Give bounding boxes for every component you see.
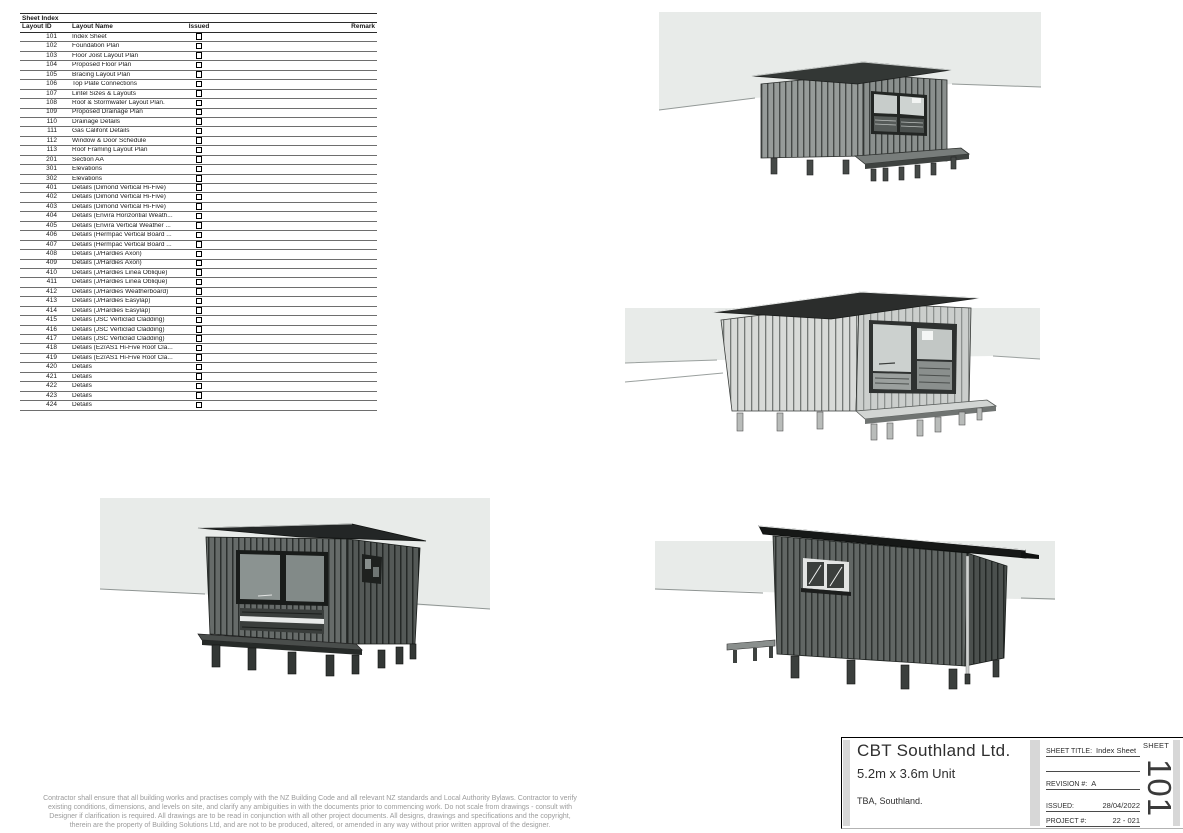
layout-id-cell: 412: [20, 289, 72, 296]
layout-name-cell: Details (E2/AS1 Hi-Five Roof Cla...: [72, 345, 187, 352]
issued-checkbox[interactable]: [196, 260, 203, 267]
sheet-index-title: Sheet Index: [20, 13, 377, 23]
issued-cell: [187, 81, 211, 88]
issued-cell: [187, 147, 211, 154]
layout-id-cell: 408: [20, 251, 72, 258]
cabin-side-wall: [348, 539, 420, 644]
sheet-index-rows: 101Index Sheet102Foundation Plan103Floor…: [20, 33, 377, 411]
disclaimer-line: Contractor shall ensure that all buildin…: [8, 794, 612, 803]
layout-name-cell: Details (J/Hardies Easylap): [72, 298, 187, 305]
issued-cell: [187, 52, 211, 59]
layout-id-cell: 401: [20, 185, 72, 192]
issued-checkbox[interactable]: [196, 137, 203, 144]
sheet-index-row: 401Details (Dimond Vertical Hi-Five): [20, 184, 377, 193]
sheet-index-row: 403Details (Dimond Vertical Hi-Five): [20, 203, 377, 212]
sheet-index-row: 105Bracing Layout Plan: [20, 71, 377, 80]
issued-cell: [187, 166, 211, 173]
sheet-index-row: 201Section AA: [20, 156, 377, 165]
issued-checkbox[interactable]: [196, 81, 203, 88]
issued-checkbox[interactable]: [196, 232, 203, 239]
issued-checkbox[interactable]: [196, 269, 203, 276]
layout-id-cell: 201: [20, 157, 72, 164]
sheet-index-row: 410Details (J/Hardies Linea Oblique): [20, 269, 377, 278]
issued-checkbox[interactable]: [196, 241, 203, 248]
layout-id-cell: 415: [20, 317, 72, 324]
issued-cell: [187, 62, 211, 69]
revision-field: REVISION #: A: [1046, 775, 1140, 790]
sheet-index-row: 414Details (J/Hardies Easylap): [20, 307, 377, 316]
title-block-divider-strip: [1030, 740, 1040, 826]
layout-name-cell: Details: [72, 393, 187, 400]
render-unit-view-back-left-light: [625, 272, 1040, 445]
issued-checkbox[interactable]: [196, 373, 203, 380]
layout-name-cell: Floor Joist Layout Plan: [72, 53, 187, 60]
company-block: CBT Southland Ltd. 5.2m x 3.6m Unit TBA,…: [857, 741, 1027, 806]
sheet-title-value: Index Sheet: [1096, 746, 1136, 755]
render-unit-view-front-left-dark: [100, 492, 490, 692]
layout-name-cell: Details (Dimond Vertical Hi-Five): [72, 204, 187, 211]
sheet-index-row: 424Details: [20, 401, 377, 410]
blank-field: [1046, 760, 1140, 772]
issued-checkbox[interactable]: [196, 251, 203, 258]
title-block-left-strip: [843, 740, 850, 826]
column-header-layout-id: Layout ID: [20, 24, 72, 31]
issued-cell: [187, 109, 211, 116]
issued-checkbox[interactable]: [196, 298, 203, 305]
sheet-index-row: 111Gas Califont Details: [20, 127, 377, 136]
layout-id-cell: 422: [20, 383, 72, 390]
layout-name-cell: Details: [72, 364, 187, 371]
layout-id-cell: 420: [20, 364, 72, 371]
layout-id-cell: 112: [20, 138, 72, 145]
sheet-index-row: 421Details: [20, 373, 377, 382]
sheet-index-row: 113Roof Framing Layout Plan: [20, 146, 377, 155]
layout-id-cell: 406: [20, 232, 72, 239]
sheet-index-row: 418Details (E2/AS1 Hi-Five Roof Cla...: [20, 344, 377, 353]
layout-name-cell: Details: [72, 383, 187, 390]
sheet-title-label: SHEET TITLE:: [1046, 748, 1092, 755]
layout-id-cell: 407: [20, 242, 72, 249]
cabin-side-wall: [721, 303, 859, 411]
issued-cell: [187, 383, 211, 390]
issued-cell: [187, 222, 211, 229]
issued-checkbox[interactable]: [196, 90, 203, 97]
issued-checkbox[interactable]: [196, 175, 203, 182]
issued-cell: [187, 137, 211, 144]
issued-checkbox[interactable]: [196, 345, 203, 352]
layout-id-cell: 113: [20, 147, 72, 154]
layout-name-cell: Details (JSC Verticlad Cladding): [72, 336, 187, 343]
sheet-index-row: 103Floor Joist Layout Plan: [20, 52, 377, 61]
layout-id-cell: 417: [20, 336, 72, 343]
layout-id-cell: 421: [20, 374, 72, 381]
small-window-glass: [373, 567, 379, 577]
sheet-index-row: 419Details (E2/AS1 Hi-Five Roof Cla...: [20, 354, 377, 363]
sheet-index-row: 420Details: [20, 363, 377, 372]
issued-cell: [187, 33, 211, 40]
issued-cell: [187, 279, 211, 286]
layout-id-cell: 110: [20, 119, 72, 126]
issued-cell: [187, 175, 211, 182]
cabin-end-wall: [965, 553, 1007, 666]
issued-checkbox[interactable]: [196, 279, 203, 286]
issued-checkbox[interactable]: [196, 326, 203, 333]
layout-id-cell: 403: [20, 204, 72, 211]
window-glass: [874, 94, 897, 114]
layout-name-cell: Details (J/Hardies Axon): [72, 251, 187, 258]
sheet-index-row: 416Details (JSC Verticlad Cladding): [20, 326, 377, 335]
issued-checkbox[interactable]: [196, 166, 203, 173]
issued-checkbox[interactable]: [196, 203, 203, 210]
issued-cell: [187, 100, 211, 107]
layout-id-cell: 101: [20, 34, 72, 41]
layout-name-cell: Top Plate Connections: [72, 81, 187, 88]
sheet-index-row: 407Details (Hermpac Vertical Board ...: [20, 241, 377, 250]
issued-cell: [187, 251, 211, 258]
issued-field: ISSUED: 28/04/2022: [1046, 798, 1140, 812]
disclaimer-text: Contractor shall ensure that all buildin…: [8, 794, 612, 830]
layout-name-cell: Details (Envira Vertical Weather ...: [72, 223, 187, 230]
layout-name-cell: Proposed Floor Plan: [72, 62, 187, 69]
layout-name-cell: Details (Hermpac Vertical Board ...: [72, 242, 187, 249]
layout-name-cell: Details (JSC Verticlad Cladding): [72, 317, 187, 324]
layout-name-cell: Details (Dimond Vertical Hi-Five): [72, 194, 187, 201]
layout-name-cell: Details (J/Hardies Easylap): [72, 308, 187, 315]
sheet-index-row: 408Details (J/Hardies Axon): [20, 250, 377, 259]
sheet-index-row: 102Foundation Plan: [20, 42, 377, 51]
layout-name-cell: Details (JSC Verticlad Cladding): [72, 327, 187, 334]
issued-cell: [187, 184, 211, 191]
issued-checkbox[interactable]: [196, 100, 203, 107]
layout-name-cell: Details (Dimond Vertical Hi-Five): [72, 185, 187, 192]
drawing-sheet: Sheet Index Layout ID Layout Name Issued…: [0, 0, 1183, 833]
layout-name-cell: Bracing Layout Plan: [72, 72, 187, 79]
issued-cell: [187, 317, 211, 324]
issued-checkbox[interactable]: [196, 184, 203, 191]
render-unit-view-rear-dark: [655, 508, 1055, 705]
issued-checkbox[interactable]: [196, 288, 203, 295]
issued-checkbox[interactable]: [196, 43, 203, 50]
layout-name-cell: Details (Hermpac Vertical Board ...: [72, 232, 187, 239]
issued-checkbox[interactable]: [196, 118, 203, 125]
issued-checkbox[interactable]: [196, 354, 203, 361]
sheet-index-table: Sheet Index Layout ID Layout Name Issued…: [20, 13, 377, 411]
window-glass: [240, 554, 280, 600]
issued-label: ISSUED:: [1046, 803, 1074, 810]
layout-name-cell: Details (J/Hardies Axon): [72, 260, 187, 267]
layout-name-cell: Details (J/Hardies Linea Oblique): [72, 279, 187, 286]
issued-checkbox[interactable]: [196, 147, 203, 154]
issued-cell: [187, 354, 211, 361]
layout-id-cell: 404: [20, 213, 72, 220]
sheet-index-row: 417Details (JSC Verticlad Cladding): [20, 335, 377, 344]
issued-cell: [187, 373, 211, 380]
layout-name-cell: Window & Door Schedule: [72, 138, 187, 145]
issued-checkbox[interactable]: [196, 222, 203, 229]
deck: [727, 640, 775, 650]
sheet-index-row: 106Top Plate Connections: [20, 80, 377, 89]
issued-cell: [187, 392, 211, 399]
sheet-index-row: 302Elevations: [20, 175, 377, 184]
window-lower-panel: [873, 373, 911, 390]
column-header-issued: Issued: [187, 24, 211, 31]
issued-cell: [187, 118, 211, 125]
issued-cell: [187, 298, 211, 305]
layout-name-cell: Details (E2/AS1 Hi-Five Roof Cla...: [72, 355, 187, 362]
layout-id-cell: 111: [20, 128, 72, 135]
issued-cell: [187, 335, 211, 342]
issued-cell: [187, 241, 211, 248]
issued-checkbox[interactable]: [196, 194, 203, 201]
issued-cell: [187, 288, 211, 295]
small-window-glass: [365, 559, 371, 569]
sheet-index-row: 112Window & Door Schedule: [20, 137, 377, 146]
layout-name-cell: Details: [72, 374, 187, 381]
column-header-remark: Remark: [211, 24, 377, 31]
issued-cell: [187, 156, 211, 163]
issued-cell: [187, 260, 211, 267]
cabin-side-wall: [761, 74, 863, 158]
window-glass: [286, 555, 324, 602]
sheet-word-label: SHEET: [1143, 741, 1169, 750]
layout-id-cell: 105: [20, 72, 72, 79]
sheet-index-header-row: Layout ID Layout Name Issued Remark: [20, 23, 377, 33]
issued-checkbox[interactable]: [196, 364, 203, 371]
sheet-index-row: 101Index Sheet: [20, 33, 377, 42]
issued-checkbox[interactable]: [196, 402, 203, 409]
layout-name-cell: Gas Califont Details: [72, 128, 187, 135]
layout-id-cell: 106: [20, 81, 72, 88]
render-unit-view-front-right: [659, 10, 1041, 183]
issued-checkbox[interactable]: [196, 392, 203, 399]
layout-id-cell: 104: [20, 62, 72, 69]
sheet-index-row: 423Details: [20, 392, 377, 401]
company-name: CBT Southland Ltd.: [857, 741, 1027, 761]
sheet-number: 101: [1142, 751, 1176, 825]
layout-name-cell: Roof Framing Layout Plan: [72, 147, 187, 154]
project-location: TBA, Southland.: [857, 796, 1027, 806]
layout-name-cell: Proposed Drainage Plan: [72, 109, 187, 116]
sheet-index-row: 402Details (Dimond Vertical Hi-Five): [20, 193, 377, 202]
layout-id-cell: 410: [20, 270, 72, 277]
disclaimer-line: therein are the property of Building Sol…: [8, 821, 612, 830]
issued-checkbox[interactable]: [196, 317, 203, 324]
sheet-index-row: 422Details: [20, 382, 377, 391]
issued-cell: [187, 232, 211, 239]
layout-id-cell: 409: [20, 260, 72, 267]
layout-id-cell: 419: [20, 355, 72, 362]
layout-name-cell: Roof & Stormwater Layout Plan.: [72, 100, 187, 107]
sheet-index-row: 413Details (J/Hardies Easylap): [20, 297, 377, 306]
issued-cell: [187, 43, 211, 50]
issued-cell: [187, 71, 211, 78]
layout-id-cell: 402: [20, 194, 72, 201]
sheet-index-row: 109Proposed Drainage Plan: [20, 109, 377, 118]
issued-checkbox[interactable]: [196, 383, 203, 390]
layout-id-cell: 405: [20, 223, 72, 230]
issued-checkbox[interactable]: [196, 62, 203, 69]
issued-cell: [187, 203, 211, 210]
layout-id-cell: 102: [20, 43, 72, 50]
issued-cell: [187, 326, 211, 333]
issued-checkbox[interactable]: [196, 307, 203, 314]
layout-id-cell: 302: [20, 176, 72, 183]
issued-cell: [187, 345, 211, 352]
layout-name-cell: Details (J/Hardies Weatherboard): [72, 289, 187, 296]
layout-id-cell: 109: [20, 109, 72, 116]
issued-cell: [187, 269, 211, 276]
title-block: CBT Southland Ltd. 5.2m x 3.6m Unit TBA,…: [841, 737, 1183, 829]
sheet-index-row: 301Elevations: [20, 165, 377, 174]
downpipe: [966, 556, 969, 674]
issued-cell: [187, 213, 211, 220]
layout-name-cell: Lintel Sizes & Layouts: [72, 91, 187, 98]
column-header-layout-name: Layout Name: [72, 24, 187, 31]
revision-value: A: [1091, 779, 1096, 788]
project-value: 22 - 021: [1112, 816, 1140, 825]
issued-checkbox[interactable]: [196, 213, 203, 220]
window-glass: [873, 324, 911, 372]
layout-name-cell: Index Sheet: [72, 34, 187, 41]
issued-checkbox[interactable]: [196, 71, 203, 78]
layout-id-cell: 107: [20, 91, 72, 98]
disclaimer-line: Designer if clarification is required. A…: [8, 812, 612, 821]
project-field: PROJECT #: 22 - 021: [1046, 814, 1140, 827]
issued-checkbox[interactable]: [196, 156, 203, 163]
layout-id-cell: 414: [20, 308, 72, 315]
layout-name-cell: Foundation Plan: [72, 43, 187, 50]
project-label: PROJECT #:: [1046, 818, 1086, 825]
window-lower-panel: [900, 118, 924, 133]
sheet-title-field: SHEET TITLE: Index Sheet: [1046, 742, 1140, 757]
issued-cell: [187, 128, 211, 135]
unit-size: 5.2m x 3.6m Unit: [857, 766, 1027, 781]
layout-id-cell: 413: [20, 298, 72, 305]
layout-id-cell: 411: [20, 279, 72, 286]
layout-id-cell: 416: [20, 327, 72, 334]
sheet-index-row: 409Details (J/Hardies Axon): [20, 260, 377, 269]
issued-checkbox[interactable]: [196, 33, 203, 40]
layout-id-cell: 103: [20, 53, 72, 60]
issued-checkbox[interactable]: [196, 335, 203, 342]
sheet-index-row: 107Lintel Sizes & Layouts: [20, 90, 377, 99]
sheet-index-row: 411Details (J/Hardies Linea Oblique): [20, 278, 377, 287]
sheet-index-row: 404Details (Envira Horizontial Weath...: [20, 212, 377, 221]
layout-id-cell: 423: [20, 393, 72, 400]
issued-checkbox[interactable]: [196, 109, 203, 116]
sheet-index-row: 108Roof & Stormwater Layout Plan.: [20, 99, 377, 108]
layout-name-cell: Elevations: [72, 166, 187, 173]
cabin-back-wall: [773, 536, 967, 666]
disclaimer-line: existing conditions, dimensions, and lev…: [8, 803, 612, 812]
issued-checkbox[interactable]: [196, 128, 203, 135]
sheet-index-row: 110Drainage Details: [20, 118, 377, 127]
sheet-index-row: 405Details (Envira Vertical Weather ...: [20, 222, 377, 231]
sheet-index-row: 104Proposed Floor Plan: [20, 61, 377, 70]
layout-name-cell: Details (Envira Horizontial Weath...: [72, 213, 187, 220]
layout-id-cell: 301: [20, 166, 72, 173]
layout-id-cell: 418: [20, 345, 72, 352]
issued-cell: [187, 194, 211, 201]
issued-value: 28/04/2022: [1102, 801, 1140, 810]
sheet-index-row: 415Details (JSC Verticlad Cladding): [20, 316, 377, 325]
issued-cell: [187, 307, 211, 314]
layout-id-cell: 424: [20, 402, 72, 409]
layout-id-cell: 108: [20, 100, 72, 107]
issued-cell: [187, 90, 211, 97]
revision-label: REVISION #:: [1046, 781, 1087, 788]
layout-name-cell: Section AA: [72, 157, 187, 164]
issued-checkbox[interactable]: [196, 52, 203, 59]
sheet-index-row: 406Details (Hermpac Vertical Board ...: [20, 231, 377, 240]
issued-cell: [187, 364, 211, 371]
issued-cell: [187, 402, 211, 409]
layout-name-cell: Drainage Details: [72, 119, 187, 126]
layout-name-cell: Details (J/Hardies Linea Oblique): [72, 270, 187, 277]
layout-name-cell: Details: [72, 402, 187, 409]
layout-name-cell: Elevations: [72, 176, 187, 183]
sheet-index-row: 412Details (J/Hardies Weatherboard): [20, 288, 377, 297]
